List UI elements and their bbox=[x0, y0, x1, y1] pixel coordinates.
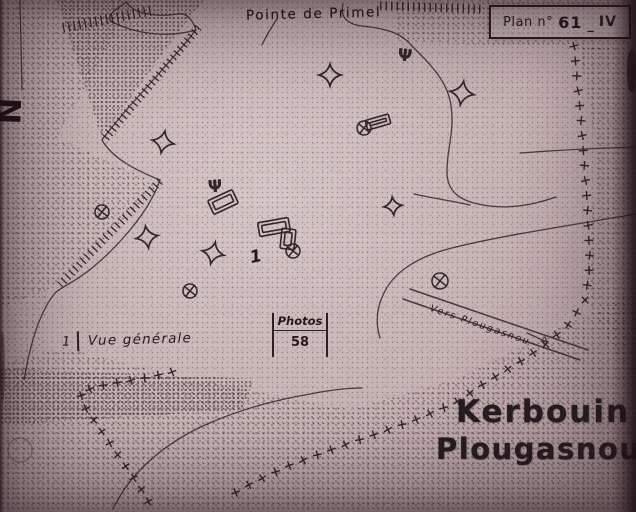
boundary-cross-icon bbox=[515, 355, 527, 367]
circle-cross-icon bbox=[354, 118, 374, 138]
faint-circle-mark bbox=[8, 438, 32, 462]
megalith-monument-icon bbox=[258, 217, 291, 236]
boundary-cross-icon bbox=[119, 460, 132, 473]
boundary-cross-icon bbox=[571, 306, 583, 318]
boundary-cross-icon bbox=[583, 220, 594, 231]
boundary-cross-icon bbox=[585, 266, 594, 275]
plan-prefix: Plan n° bbox=[503, 15, 553, 30]
boundary-cross-icon bbox=[572, 71, 582, 81]
boundary-cross-icon bbox=[382, 423, 394, 435]
north-letter: N bbox=[0, 97, 28, 125]
psi-symbol-icon: Ψ bbox=[397, 45, 413, 66]
boundary-cross-icon bbox=[87, 414, 100, 427]
cliff-hatching-headland bbox=[62, 5, 154, 32]
circle-cross-icon bbox=[429, 270, 451, 292]
boundary-cross-icon bbox=[570, 56, 580, 66]
map-title-line2: Plougasnou bbox=[436, 432, 636, 467]
plan-number-box: Plan n° 61 _ IV bbox=[489, 5, 631, 39]
boundary-cross-icon bbox=[312, 450, 323, 461]
boundary-cross-icon bbox=[577, 130, 588, 141]
field-boundary-center-right bbox=[377, 214, 636, 338]
map-photo: ΨΨ Pointe de Primel Plan n° 61 _ IV 1 Vu… bbox=[0, 0, 636, 512]
plan-separator: _ bbox=[587, 18, 594, 33]
vue-generale-annotation: 1 Vue générale bbox=[62, 328, 193, 351]
four-point-star-icon bbox=[200, 240, 226, 266]
four-point-star-icon bbox=[383, 196, 403, 216]
megalith-monument-icon bbox=[208, 189, 239, 214]
boundary-cross-icon bbox=[578, 146, 588, 156]
boundary-cross-icon bbox=[562, 319, 575, 332]
north-arrow-shaft bbox=[20, 0, 22, 90]
boundary-cross-icon bbox=[576, 116, 586, 126]
headland-outline bbox=[109, 2, 196, 34]
boundary-cross-icon bbox=[551, 328, 563, 340]
boundary-cross-icon bbox=[527, 347, 539, 359]
boundary-cross-icon bbox=[569, 41, 580, 52]
boundary-cross-icon bbox=[397, 419, 408, 430]
boundary-cross-icon bbox=[128, 472, 140, 484]
photos-label: Photos bbox=[274, 313, 326, 331]
vers-plougasnou-road-label: Vers Plougasnou bbox=[428, 303, 531, 348]
road-edge-1 bbox=[410, 289, 588, 350]
cliff-hatching-coast-lower bbox=[57, 178, 163, 287]
megalith-monument-icon bbox=[280, 228, 296, 249]
boundary-cross-icon bbox=[326, 444, 337, 455]
vue-number: 1 bbox=[62, 334, 71, 349]
boundary-cross-icon bbox=[584, 236, 593, 245]
four-point-star-icon bbox=[135, 225, 160, 250]
vue-label: Vue générale bbox=[88, 330, 193, 349]
boundary-cross-icon bbox=[339, 439, 351, 451]
coastline-right-horizontal bbox=[520, 147, 636, 153]
ink-blob-left-edge bbox=[0, 332, 5, 402]
psi-symbol-icon: Ψ bbox=[207, 177, 223, 198]
boundary-cross-icon bbox=[75, 390, 86, 401]
boundary-cross-icon bbox=[95, 425, 108, 438]
circle-cross-icon bbox=[180, 281, 200, 301]
boundary-cross-icon bbox=[580, 161, 590, 171]
photos-reference-box: Photos 58 bbox=[272, 313, 328, 357]
four-point-star-icon bbox=[150, 129, 175, 154]
boundary-cross-icon bbox=[111, 448, 124, 461]
boundary-cross-icon bbox=[573, 85, 584, 96]
plan-number: 61 bbox=[558, 13, 582, 32]
plan-suffix: IV bbox=[599, 14, 617, 30]
boundary-cross-icon bbox=[142, 495, 154, 507]
field-line-small bbox=[414, 194, 470, 205]
ink-blob-right-edge bbox=[627, 50, 636, 92]
boundary-cross-icon bbox=[270, 466, 281, 477]
boundary-cross-icon bbox=[84, 383, 96, 395]
boundary-cross-icon bbox=[424, 407, 436, 419]
photos-number: 58 bbox=[274, 331, 326, 350]
boundary-cross-icon bbox=[125, 375, 136, 386]
boundary-cross-icon bbox=[230, 487, 242, 499]
four-point-star-icon bbox=[319, 64, 341, 86]
boundary-cross-icon bbox=[368, 429, 379, 440]
boundary-cross-icon bbox=[112, 377, 122, 387]
cliff-hatching-coast-upper bbox=[100, 25, 201, 144]
boundary-cross-icon bbox=[582, 280, 592, 290]
photo-edge-left bbox=[0, 0, 4, 512]
boundary-cross-icon bbox=[153, 370, 164, 381]
boundary-cross-icon bbox=[104, 437, 116, 449]
boundary-cross-icon bbox=[489, 371, 501, 383]
boundary-cross-icon bbox=[98, 380, 108, 390]
boundary-cross-icon bbox=[256, 472, 269, 485]
map-title-line1: Kerbouin bbox=[456, 394, 636, 432]
boundary-cross-icon bbox=[501, 363, 514, 376]
circle-cross-icon bbox=[283, 241, 303, 261]
boundary-cross-icon bbox=[583, 205, 593, 215]
boundary-cross-icon bbox=[140, 373, 150, 383]
site-number-label: 1 bbox=[248, 246, 264, 268]
boundary-cross-icon bbox=[476, 379, 488, 391]
field-boundary-bottom-left bbox=[113, 388, 362, 509]
boundary-cross-icon bbox=[243, 479, 255, 491]
boundary-cross-icon bbox=[410, 414, 422, 426]
boundary-cross-icon bbox=[166, 366, 178, 378]
four-point-star-icon bbox=[448, 79, 475, 106]
boundary-cross-icon bbox=[539, 338, 552, 351]
circle-cross-icon bbox=[92, 202, 112, 222]
vue-divider-tick bbox=[77, 331, 79, 351]
boundary-cross-icon bbox=[575, 101, 585, 111]
boundary-cross-icon bbox=[580, 175, 591, 186]
pointe-de-primel-label: Pointe de Primel bbox=[246, 4, 382, 24]
boundary-cross-icon bbox=[354, 434, 365, 445]
boundary-cross-icon bbox=[297, 454, 309, 466]
cliff-hatching-top bbox=[380, 1, 482, 14]
boundary-cross-icon bbox=[283, 460, 295, 472]
boundary-cross-icon bbox=[579, 294, 592, 307]
boundary-cross-icon bbox=[585, 250, 595, 260]
boundary-cross-icon bbox=[80, 403, 92, 415]
megalith-monument-icon bbox=[365, 114, 391, 130]
boundary-cross-icon bbox=[135, 483, 148, 496]
coastline-main bbox=[24, 30, 196, 380]
map-title: Kerbouin Plougasnou bbox=[436, 394, 636, 467]
boundary-cross-icon bbox=[582, 191, 592, 201]
